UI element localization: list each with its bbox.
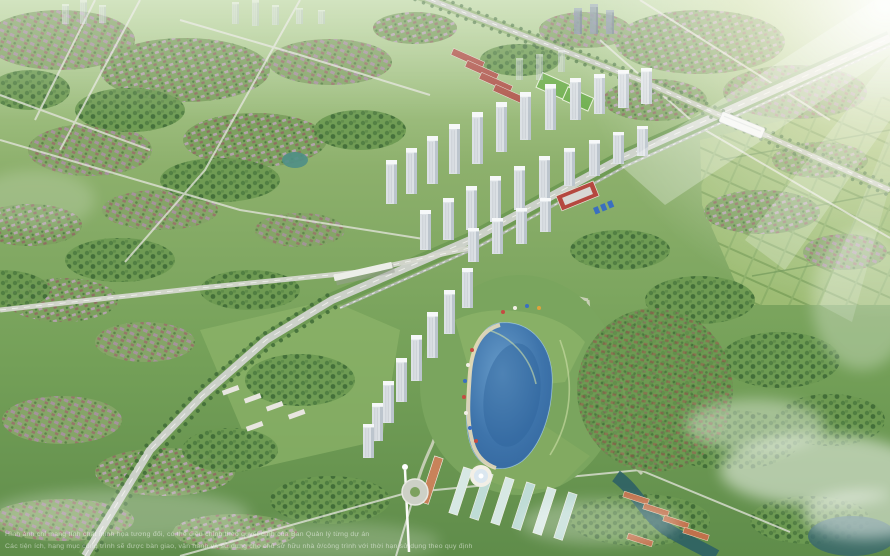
- watermark-line1: Hình ảnh chỉ mang tính chất minh họa tươ…: [5, 529, 369, 538]
- scene-canvas: Hình ảnh chỉ mang tính chất minh họa tươ…: [0, 0, 890, 556]
- aerial-render: Hình ảnh chỉ mang tính chất minh họa tươ…: [0, 0, 890, 556]
- fountain-plaza: [470, 465, 492, 487]
- watermark-line2: Các tiện ích, hạng mục công trình sẽ đượ…: [5, 542, 473, 550]
- small-pond: [282, 152, 308, 168]
- roundabout: [402, 479, 428, 505]
